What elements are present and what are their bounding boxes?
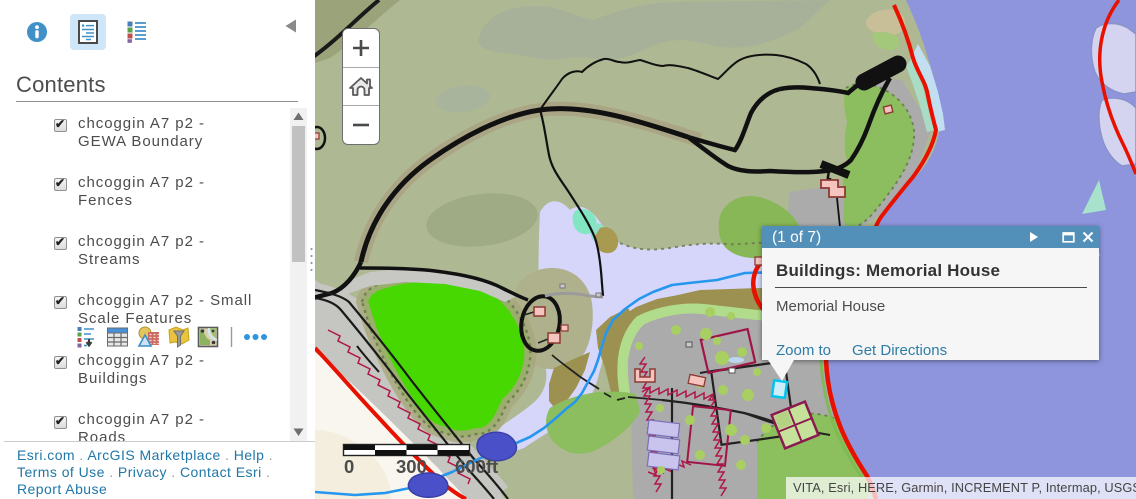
svg-text:300: 300 [396, 456, 427, 477]
svg-text:0: 0 [344, 456, 354, 477]
svg-text:600ft: 600ft [455, 456, 498, 477]
